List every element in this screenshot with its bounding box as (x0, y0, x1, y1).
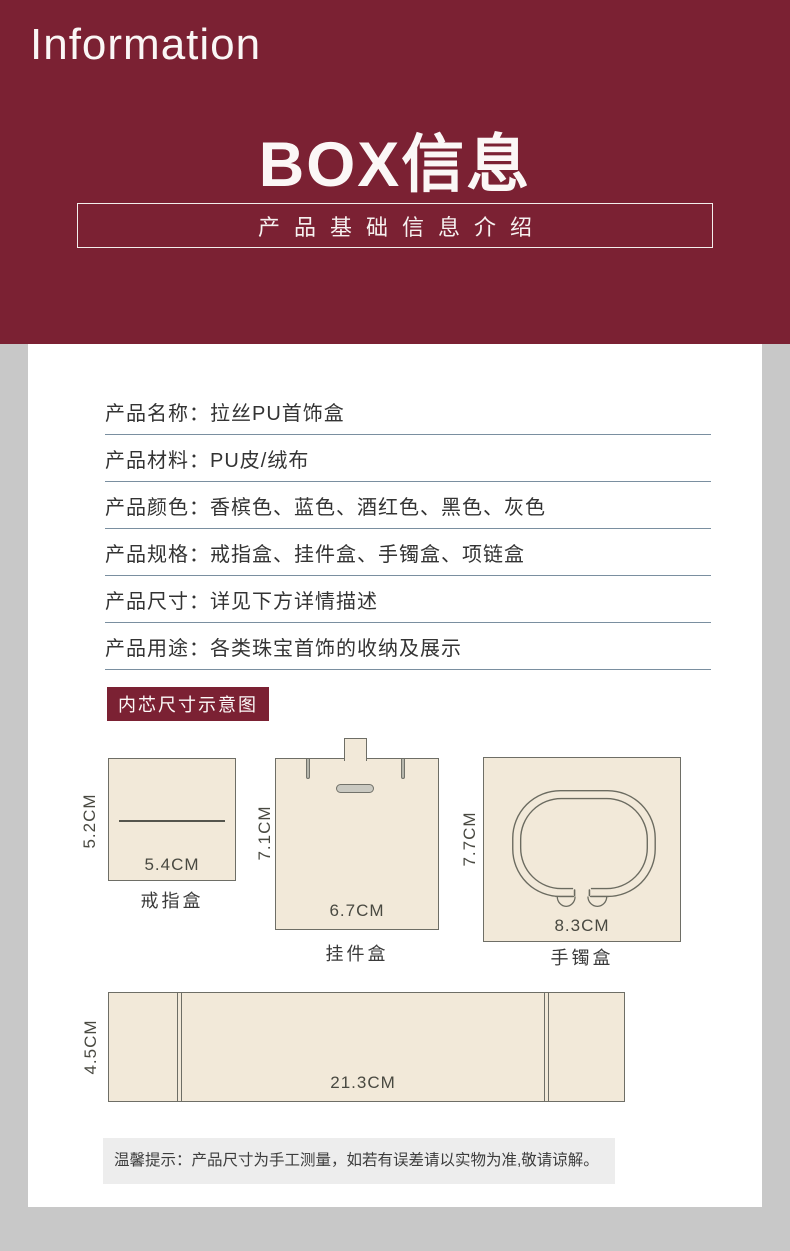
spec-row-color: 产品颜色：香槟色、蓝色、酒红色、黑色、灰色 (105, 482, 711, 529)
page-title: BOX信息 (0, 114, 790, 205)
spec-row-size: 产品尺寸：详见下方详情描述 (105, 576, 711, 623)
ring-height-label: 5.2CM (80, 781, 98, 861)
ring-slot-line (119, 820, 225, 822)
ring-width-label: 5.4CM (109, 855, 235, 875)
spec-row-name: 产品名称：拉丝PU首饰盒 (105, 388, 711, 435)
spec-label: 产品规格： (105, 538, 210, 567)
eyebrow-text: Information (30, 20, 261, 70)
section-label: 内芯尺寸示意图 (107, 687, 269, 721)
spec-value: 拉丝PU首饰盒 (210, 397, 345, 426)
spec-row-usage: 产品用途：各类珠宝首饰的收纳及展示 (105, 623, 711, 670)
bangle-width-label: 8.3CM (484, 916, 680, 936)
spec-label: 产品名称： (105, 397, 210, 426)
pendant-tab (344, 738, 367, 761)
bangle-height-label: 7.7CM (460, 799, 478, 879)
spec-value: 各类珠宝首饰的收纳及展示 (210, 632, 462, 661)
pendant-box-name: 挂件盒 (275, 940, 439, 966)
pendant-height-label: 7.1CM (255, 793, 273, 873)
ring-box-name: 戒指盒 (108, 887, 236, 913)
necklace-height-label: 4.5CM (81, 1007, 99, 1087)
subtitle-text: 产品基础信息介绍 (244, 210, 546, 242)
spec-value: 戒指盒、挂件盒、手镯盒、项链盒 (210, 538, 525, 567)
spec-label: 产品用途： (105, 632, 210, 661)
pendant-slot-right (401, 759, 405, 779)
necklace-box-diagram: 21.3CM (108, 992, 625, 1102)
pendant-width-label: 6.7CM (276, 901, 438, 921)
header-banner: Information BOX信息 产品基础信息介绍 (0, 0, 790, 344)
spec-label: 产品尺寸： (105, 585, 210, 614)
spec-value: 香槟色、蓝色、酒红色、黑色、灰色 (210, 491, 546, 520)
bangle-box-name: 手镯盒 (483, 944, 681, 970)
product-info-page: Information BOX信息 产品基础信息介绍 产品名称：拉丝PU首饰盒 … (0, 0, 790, 1251)
necklace-width-label: 21.3CM (182, 1073, 544, 1093)
specs-table: 产品名称：拉丝PU首饰盒 产品材料：PU皮/绒布 产品颜色：香槟色、蓝色、酒红色… (105, 388, 711, 670)
spec-label: 产品材料： (105, 444, 210, 473)
spec-value: PU皮/绒布 (210, 444, 309, 473)
bangle-box-diagram: 8.3CM (483, 757, 681, 942)
note-box: 温馨提示：产品尺寸为手工测量，如若有误差请以实物为准,敬请谅解。 (103, 1138, 615, 1184)
necklace-divider-right (544, 993, 549, 1101)
pendant-slot-left (306, 759, 310, 779)
bangle-icon (484, 758, 680, 941)
note-text: 温馨提示：产品尺寸为手工测量，如若有误差请以实物为准,敬请谅解。 (114, 1152, 599, 1169)
spec-row-spec: 产品规格：戒指盒、挂件盒、手镯盒、项链盒 (105, 529, 711, 576)
spec-label: 产品颜色： (105, 491, 210, 520)
pendant-box-diagram: 6.7CM (275, 758, 439, 930)
ring-box-diagram: 5.4CM (108, 758, 236, 881)
pendant-pill-slot (336, 784, 374, 793)
spec-value: 详见下方详情描述 (210, 585, 378, 614)
spec-row-material: 产品材料：PU皮/绒布 (105, 435, 711, 482)
subtitle-box: 产品基础信息介绍 (77, 203, 713, 248)
content-card: 产品名称：拉丝PU首饰盒 产品材料：PU皮/绒布 产品颜色：香槟色、蓝色、酒红色… (28, 344, 762, 1207)
